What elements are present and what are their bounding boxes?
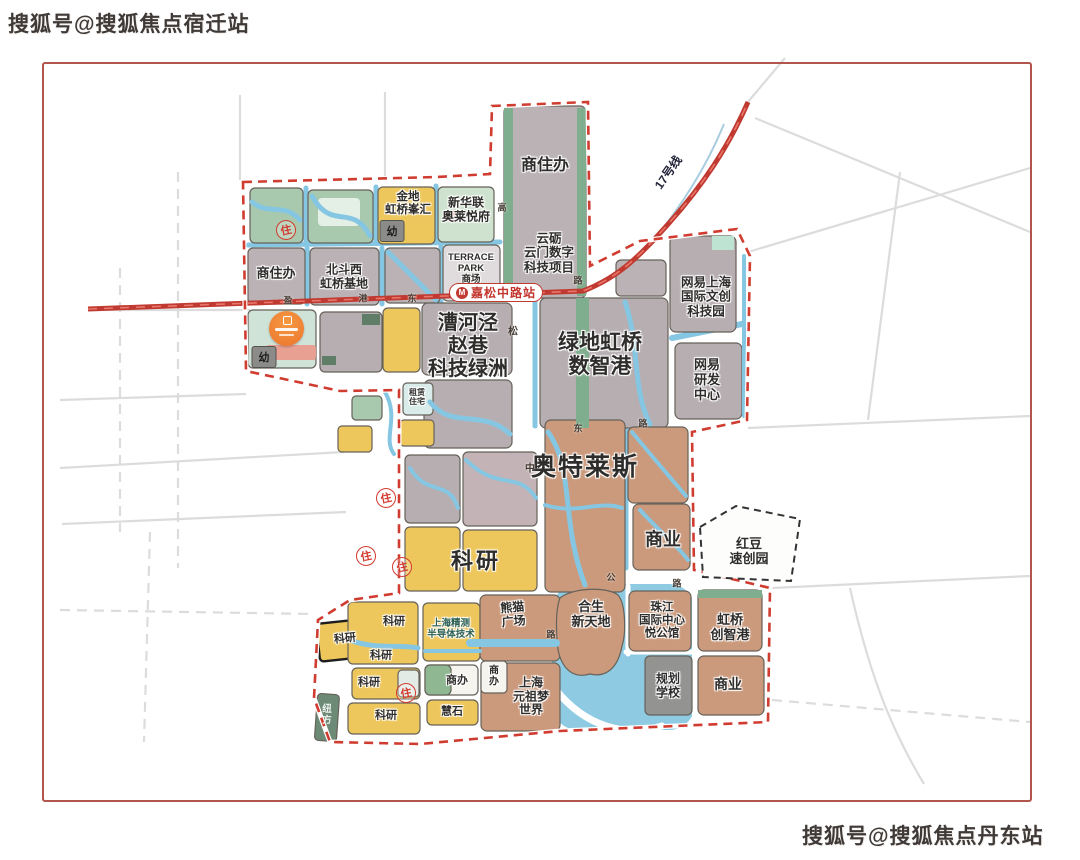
label-shangban-mid: 商办 [446,675,468,688]
metro-station-badge: M 嘉松中路站 [449,283,543,302]
road-char-song: 松 [508,323,518,338]
road-char-lu4: 路 [546,628,555,641]
label-guihua: 规划 学校 [656,672,680,699]
road-char-zhong: 中 [525,460,535,475]
label-lvdi: 绿地虹桥 数智港 [558,331,642,379]
label-wangyi-rd: 网易 研发 中心 [694,358,720,402]
label-hongqiao-czg: 虹桥 创智港 [710,613,749,643]
label-wangyi-park: 网易上海 国际文创 科技园 [681,276,731,319]
label-terrace: TERRACE PARK 商场 [448,253,494,285]
label-huishi: 慧石 [441,706,463,719]
label-aotelaisi: 奥特莱斯 [531,453,639,482]
road-char-gong: 公 [606,571,615,584]
label-niufang: 纽 方 [322,705,332,727]
road-char-lu3: 路 [672,577,681,590]
label-shangzhuban-north: 商住办 [521,157,569,175]
road-char-dong2: 东 [573,422,582,435]
label-jingce: 上海精测 半导体技术 [427,619,475,641]
label-zulin: 租赁 住宅 [409,388,425,406]
road-char-dong: 东 [407,292,416,305]
label-zhujiang: 珠江 国际中心 悦公馆 [639,601,685,640]
logo-text-bar [275,328,298,331]
project-logo [269,311,304,346]
label-hongdou: 红豆 速创园 [729,537,768,567]
label-keyan-2: 科研 [370,650,392,663]
watermark-bottom-right: 搜狐号@搜狐焦点丹东站 [802,820,1043,850]
planning-map: 搜狐号@搜狐焦点宿迁站 搜狐号@搜狐焦点丹东站 商住办 云砺 云门数字 科技项目… [0,0,1080,860]
label-keyan-big: 科研 [451,548,501,573]
label-shangye-south: 商业 [714,677,742,693]
label-yuanzu: 上海 元祖梦 世界 [513,676,549,717]
label-panda: 熊猫 广场 [500,600,526,629]
road-char-ying: 盈 [283,294,292,307]
label-keyan-4: 科研 [375,710,397,723]
label-shangban-south: 商 办 [489,666,499,689]
label-jindi: 金地 虹桥峯汇 [385,191,431,217]
road-char-gao: 高 [497,201,506,214]
logo-emblem-icon [283,316,292,325]
road-char-lu2: 路 [638,417,647,430]
road-char-lu1: 路 [573,274,582,287]
metro-station-name: 嘉松中路站 [471,284,536,301]
label-caohejing: 漕河泾 赵巷 科技绿洲 [428,312,508,380]
label-hesheng: 合生 新天地 [571,600,610,630]
label-keyan-1: 科研 [383,616,405,629]
label-keyan-5: 科研 [333,632,356,647]
road-char-gang: 港 [358,292,367,305]
label-yunli: 云砺 云门数字 科技项目 [524,232,574,275]
label-beidou: 北斗西 虹桥基地 [320,263,368,290]
kindergarten-chip: 幼 [252,346,277,368]
label-xinhualian: 新华联 奥莱悦府 [442,196,490,223]
logo-text-bar [279,334,294,336]
label-shangye-east: 商业 [645,530,681,551]
kindergarten-chip: 幼 [380,220,405,242]
label-shangzhuban-west: 商住办 [256,267,295,282]
label-keyan-3: 科研 [358,677,380,690]
watermark-top-left: 搜狐号@搜狐焦点宿迁站 [8,8,249,38]
metro-logo-icon: M [456,287,468,299]
